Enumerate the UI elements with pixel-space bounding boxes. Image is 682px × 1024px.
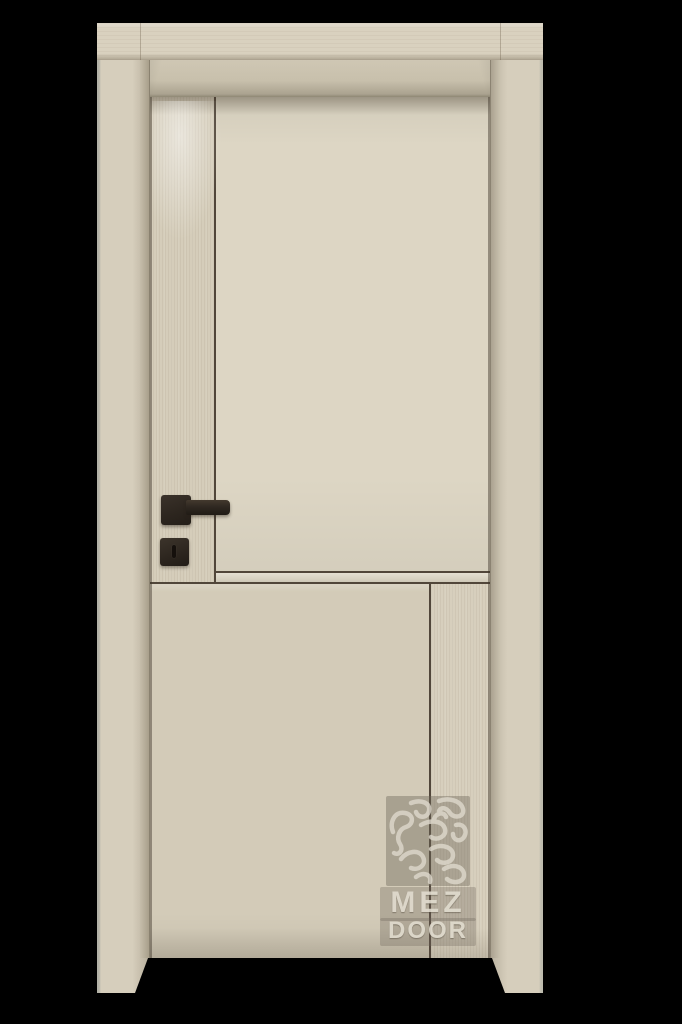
privacy-lock (160, 538, 189, 566)
groove-horizontal-lower (150, 582, 490, 584)
door-product-render: MEZ DOOR (0, 0, 682, 1024)
logo-tree-icon (386, 796, 470, 886)
frame-left-reveal (140, 60, 150, 958)
door-leaf: MEZ DOOR (150, 97, 490, 958)
frame-head-casing (97, 23, 543, 60)
leaf-highlight (152, 101, 222, 241)
frame-miter-joint-right (500, 23, 501, 60)
frame-miter-joint-left (140, 23, 141, 60)
logo-text-line1: MEZ (380, 887, 476, 921)
watermark-logo: MEZ DOOR (386, 796, 470, 942)
frame-right-reveal (490, 60, 500, 958)
leaf-upper-right-panel (216, 97, 490, 571)
logo-text-line2: DOOR (380, 918, 476, 946)
groove-horizontal-upper (216, 571, 490, 573)
lock-turn-slot (172, 545, 176, 558)
leaf-gap-left (150, 97, 152, 958)
door-lever-handle (186, 500, 230, 515)
frame-head-reveal (140, 60, 500, 97)
leaf-gap-right (488, 97, 490, 958)
leaf-middle-rail (216, 573, 490, 582)
